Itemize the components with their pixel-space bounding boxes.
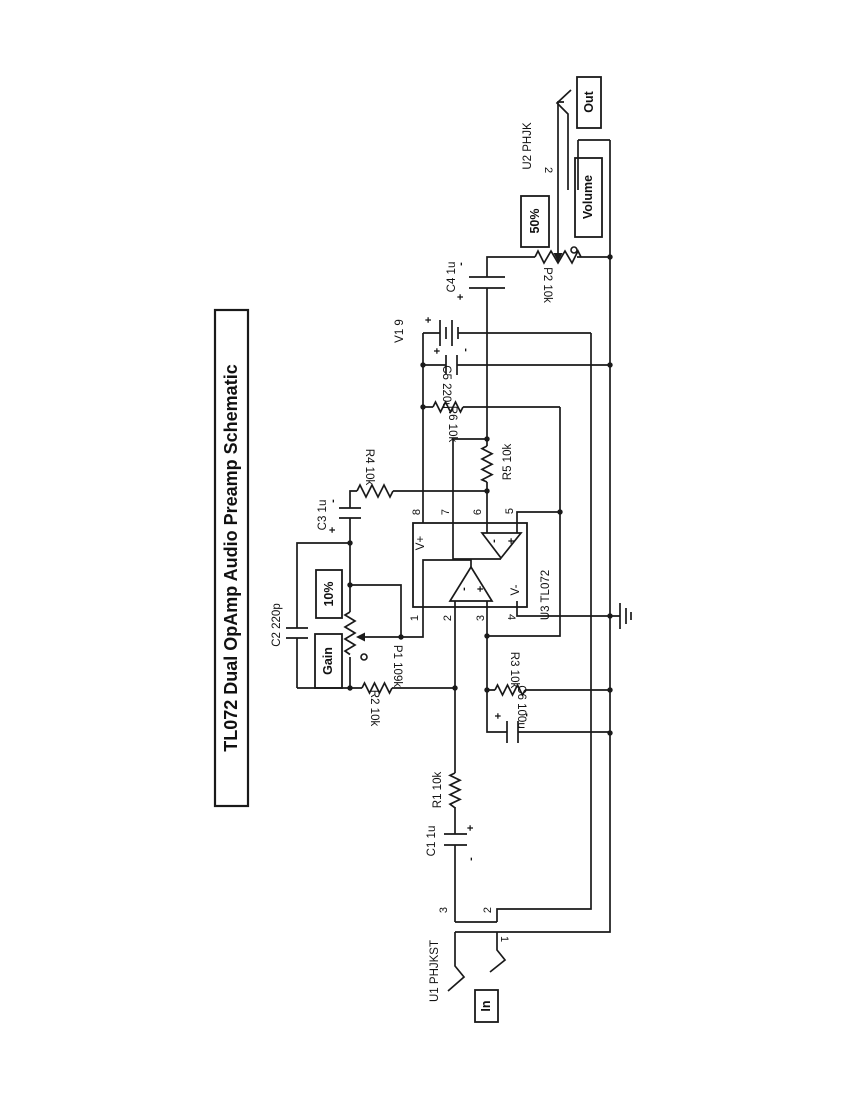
volume-value-label: 50%: [528, 208, 542, 233]
pin-5: 5: [504, 508, 516, 514]
junction-dot: [484, 488, 489, 493]
pin-1: 1: [409, 615, 421, 621]
junction-dots: [347, 254, 612, 735]
pin-6: 6: [472, 509, 484, 515]
opamp-a-triangle: [450, 567, 492, 601]
c4-plus-sign: +: [455, 294, 467, 300]
schematic-page: TL072 Dual OpAmp Audio Preamp Schematic: [0, 0, 850, 1100]
ic-vminus-label: V-: [510, 584, 522, 595]
gain-label: Gain: [321, 647, 335, 675]
battery-symbol: [440, 320, 458, 346]
wire: [558, 102, 564, 255]
jack-body: [568, 140, 578, 190]
junction-dot: [347, 540, 352, 545]
out-label: Out: [582, 90, 596, 112]
junction-dot: [420, 404, 425, 409]
pin-8: 8: [411, 509, 423, 515]
wire: [350, 491, 357, 508]
junction-dot: [607, 687, 612, 692]
junction-dot: [484, 633, 489, 638]
u2-pin-tip: 2: [542, 167, 554, 173]
junction-dot: [420, 362, 425, 367]
u1-pin-tip: 3: [438, 907, 450, 913]
opamp-a-plus: +: [475, 586, 487, 592]
schematic-canvas: TL072 Dual OpAmp Audio Preamp Schematic: [0, 0, 850, 1100]
jack-tip-spring: [557, 90, 571, 140]
label-r4: R4 10k: [363, 449, 375, 486]
cap-c4: [469, 277, 505, 288]
junction-dot: [607, 613, 612, 618]
ic-ref-label: U3 TL072: [540, 570, 552, 620]
ic-pin-numbers: 8 7 6 5 1 2 3 4: [409, 508, 517, 621]
label-p1: P1 109k: [391, 645, 403, 687]
pin-2: 2: [442, 615, 454, 621]
u1-pin-sleeve: 2: [482, 907, 494, 913]
badges: 10% Gain In 50% Volume Out: [315, 77, 602, 1022]
c6-plus-sign: +: [491, 713, 503, 719]
label-r1: R1 10k: [432, 772, 444, 809]
in-label: In: [479, 1000, 493, 1011]
ground-glyph: [610, 603, 631, 629]
junction-dot: [607, 254, 612, 259]
capacitors: [286, 277, 518, 845]
pin-7: 7: [440, 509, 452, 515]
c5-minus-sign: -: [460, 348, 472, 352]
c1-plus-sign: +: [465, 825, 477, 831]
page-title: TL072 Dual OpAmp Audio Preamp Schematic: [221, 364, 241, 751]
label-r5: R5 10k: [502, 444, 514, 481]
c1-minus-sign: -: [465, 857, 477, 861]
opamp-b-plus: +: [506, 538, 518, 544]
label-c5: C5 220u: [440, 365, 452, 408]
label-p2: P2 10k: [541, 267, 553, 303]
component-labels: C2 220p C3 1u R4 10k P1 109k R2 10k R1 1…: [271, 122, 553, 1002]
battery-v1: [440, 320, 458, 346]
ic-vplus-label: V+: [415, 536, 427, 551]
opamp-b-minus: -: [488, 539, 500, 543]
volume-label: Volume: [581, 175, 595, 219]
label-r6: R6 10k: [446, 406, 458, 443]
c5-plus-sign: +: [430, 348, 442, 354]
c6-minus-sign: -: [521, 713, 533, 717]
pot-rotation-mark: [571, 247, 577, 253]
u1-pin-ring: 1: [498, 936, 510, 942]
wire: [517, 601, 610, 616]
opamp-b-triangle: [482, 533, 521, 558]
junction-dot: [484, 436, 489, 441]
pot-p1-wiper-arrow: [356, 633, 365, 642]
c4-minus-sign: -: [455, 262, 467, 266]
jack-body: [455, 922, 497, 932]
resistor-r1: [450, 773, 460, 808]
junction-dot: [347, 582, 352, 587]
wire: [487, 257, 535, 439]
c3-minus-sign: -: [327, 499, 339, 503]
junction-dot: [398, 634, 403, 639]
label-r2: R2 10k: [368, 690, 380, 727]
ground-symbol: [610, 603, 631, 629]
label-c6: C6 100u: [515, 685, 527, 728]
label-v1: V1 9: [394, 319, 406, 343]
pin-4: 4: [505, 614, 517, 620]
pot-p1: [345, 612, 355, 655]
cap-c2: [286, 628, 308, 638]
junction-dot: [452, 685, 457, 690]
input-jack-u1: [448, 922, 505, 991]
resistor-r4: [357, 485, 393, 497]
wire: [497, 333, 591, 922]
cap-c1: [444, 834, 467, 845]
wire: [350, 585, 401, 637]
junction-dot: [557, 509, 562, 514]
label-u2: U2 PHJK: [522, 122, 534, 170]
c3-plus-sign: +: [327, 527, 339, 533]
junction-dot: [607, 730, 612, 735]
opamp-a-minus: -: [458, 587, 470, 591]
label-u1: U1 PHJKST: [429, 940, 441, 1002]
jack-tip-spring: [448, 932, 464, 991]
junction-dot: [347, 685, 352, 690]
ic-internal: [423, 523, 521, 607]
label-r3: R3 10k: [508, 652, 520, 689]
resistors: [357, 402, 525, 808]
junction-dot: [484, 687, 489, 692]
pot-rotation-mark: [361, 654, 367, 660]
gain-value-label: 10%: [322, 581, 336, 606]
label-c1: C1 1u: [426, 826, 438, 857]
label-c3: C3 1u: [317, 500, 329, 531]
cap-c3: [339, 508, 361, 518]
pin-3: 3: [475, 615, 487, 621]
polarity-signs: + + - - + - + + - + -: [327, 262, 533, 861]
label-c2: C2 220p: [271, 603, 283, 646]
junction-dot: [607, 362, 612, 367]
battery-plus-sign: +: [423, 317, 435, 323]
resistor-r5: [482, 446, 492, 482]
